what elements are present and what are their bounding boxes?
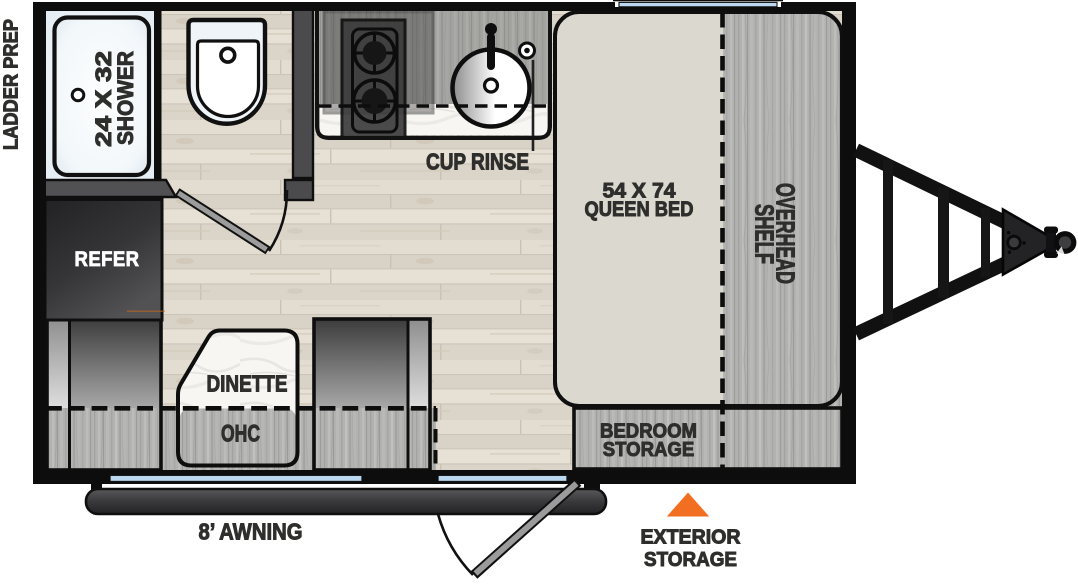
svg-text:STORAGE: STORAGE	[603, 438, 695, 461]
svg-text:QUEEN BED: QUEEN BED	[585, 197, 694, 221]
svg-text:EXTERIOR: EXTERIOR	[641, 527, 742, 549]
svg-text:REFER: REFER	[75, 248, 140, 271]
svg-text:SHOWER: SHOWER	[113, 51, 138, 145]
svg-text:SHELF: SHELF	[750, 204, 780, 264]
svg-text:8’ AWNING: 8’ AWNING	[199, 519, 303, 545]
svg-text:STORAGE: STORAGE	[644, 549, 737, 571]
svg-text:OHC: OHC	[221, 421, 260, 448]
svg-text:CUP RINSE: CUP RINSE	[426, 149, 529, 175]
svg-text:LADDER PREP: LADDER PREP	[1, 19, 23, 150]
svg-text:DINETTE: DINETTE	[207, 371, 288, 397]
